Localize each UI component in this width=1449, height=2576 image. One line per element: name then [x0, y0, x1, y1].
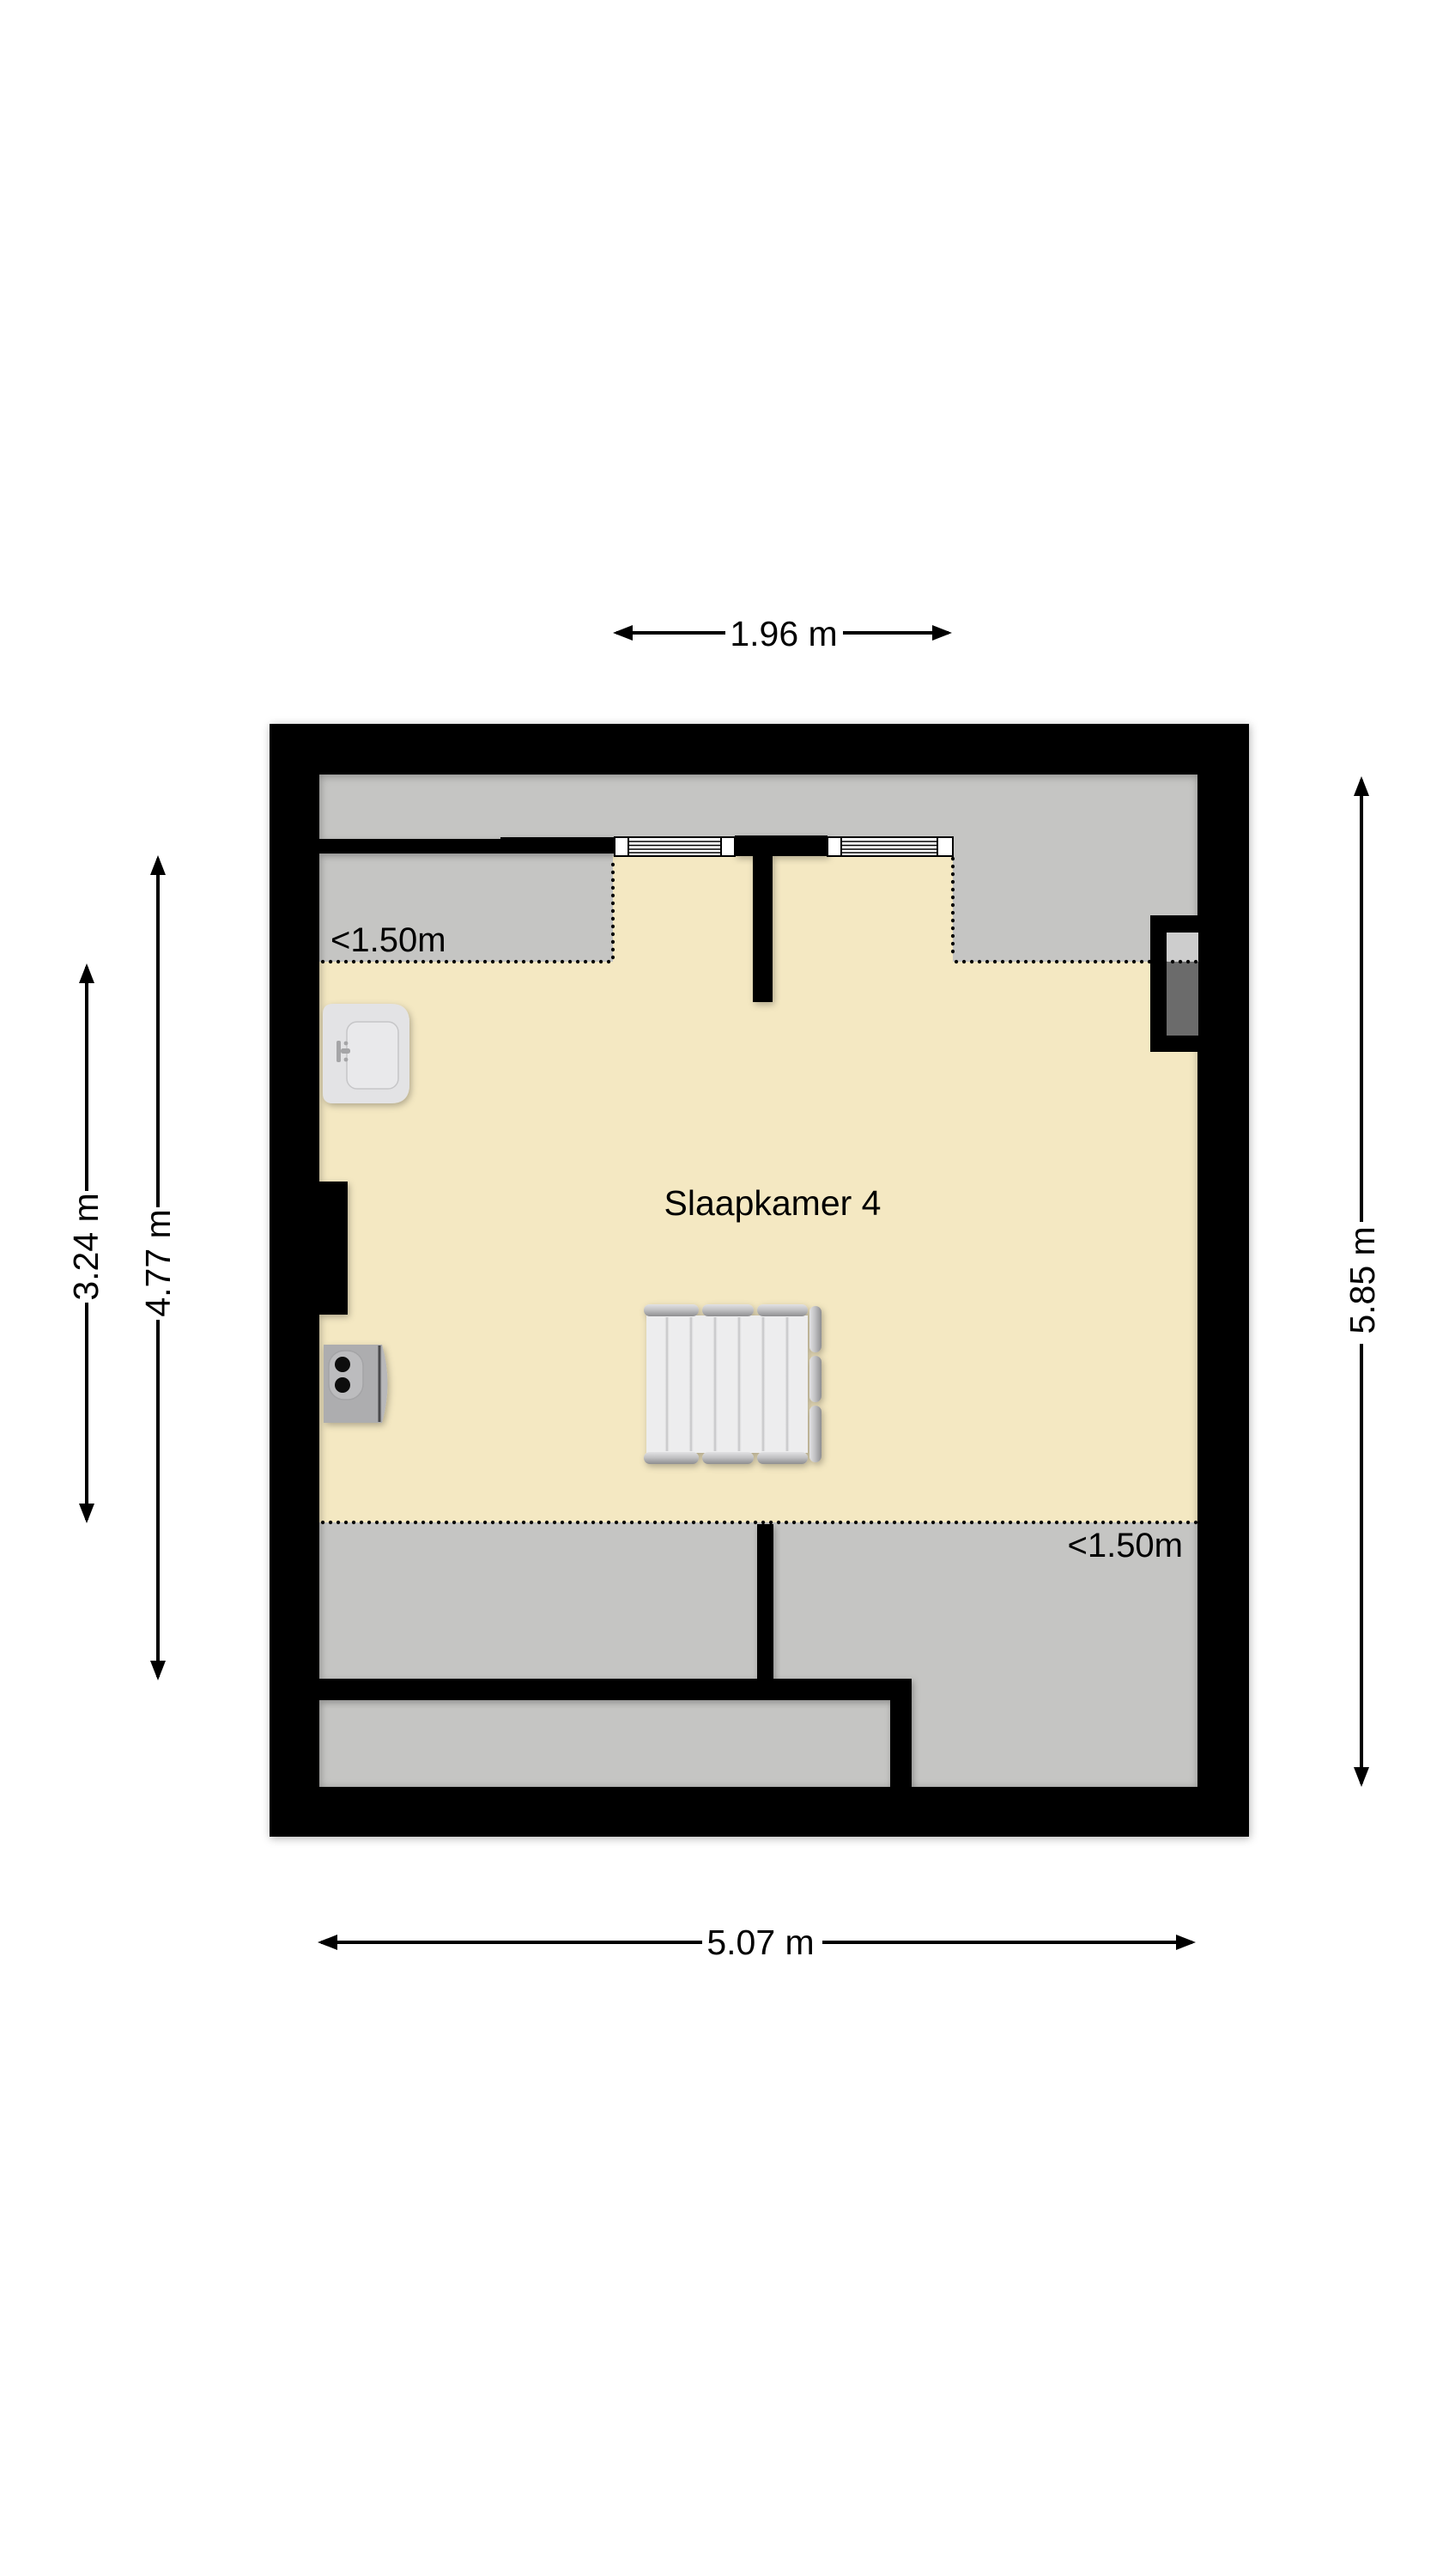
svg-text:3.24 m: 3.24 m [66, 1193, 106, 1300]
svg-text:<1.50m: <1.50m [1067, 1527, 1183, 1564]
svg-text:4.77 m: 4.77 m [138, 1209, 178, 1316]
svg-text:5.07 m: 5.07 m [706, 1923, 814, 1962]
svg-text:Slaapkamer 4: Slaapkamer 4 [664, 1183, 882, 1223]
svg-text:1.96 m: 1.96 m [730, 614, 837, 653]
svg-text:<1.50m: <1.50m [330, 921, 446, 959]
svg-text:5.85 m: 5.85 m [1343, 1226, 1382, 1334]
